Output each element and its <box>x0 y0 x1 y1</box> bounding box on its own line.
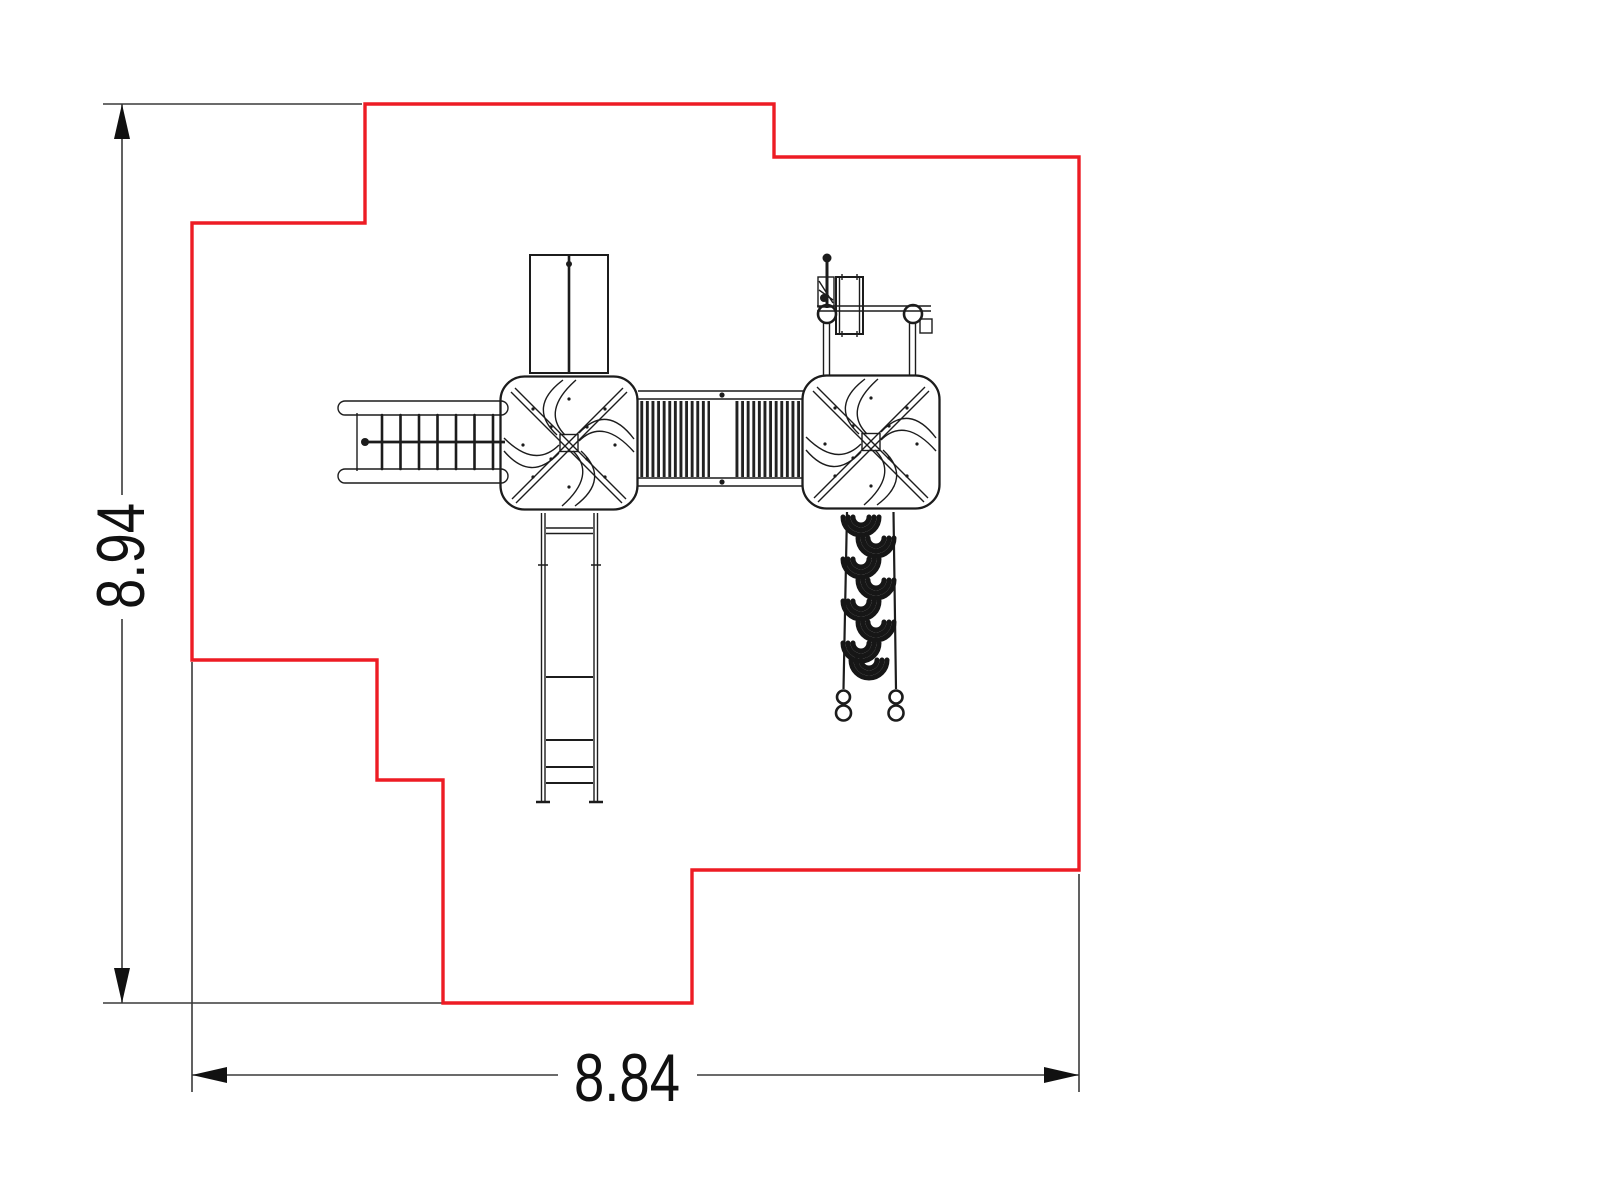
plan-view-drawing: 8.94 8.84 <box>0 0 1600 1200</box>
bridge-gap-bolt-top <box>719 392 724 397</box>
drawing-canvas: 8.94 8.84 <box>0 0 1600 1200</box>
background <box>0 0 1600 1200</box>
small-panel-knob <box>820 294 828 302</box>
bridge-gap-bolt-bottom <box>719 479 724 484</box>
bridge-center-gap <box>710 399 735 479</box>
clatter-bridge <box>638 391 803 486</box>
periscope-ball <box>823 254 832 263</box>
width-dimension-label: 8.84 <box>574 1040 680 1116</box>
slat-climber-top-bolt <box>566 261 572 267</box>
height-dimension-label: 8.94 <box>83 503 159 609</box>
ladder-beam-anchor <box>361 438 369 446</box>
